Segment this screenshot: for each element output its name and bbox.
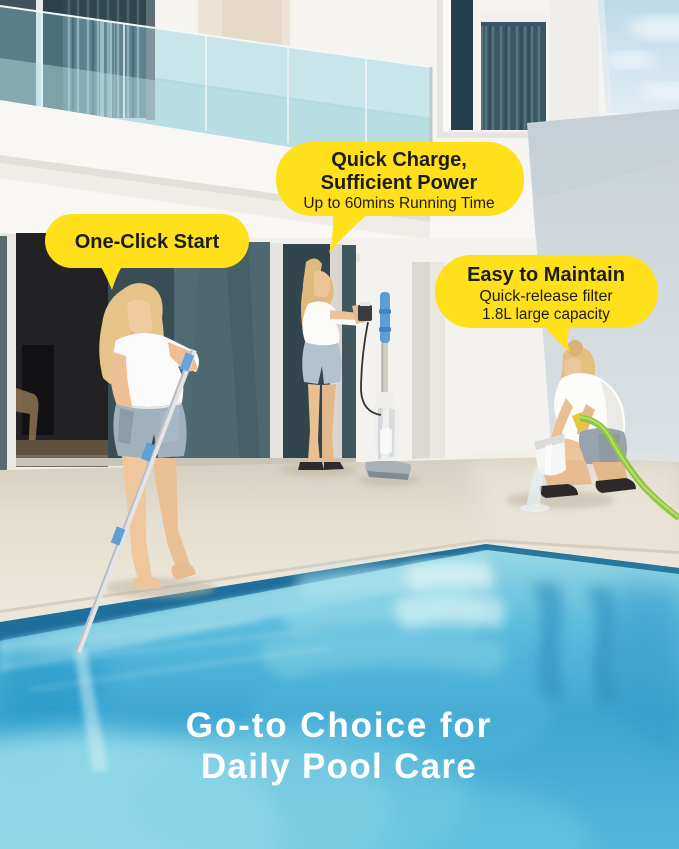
svg-text:Up to 60mins Running Time: Up to 60mins Running Time [303,195,494,212]
svg-text:One-Click Start: One-Click Start [75,231,220,253]
svg-text:Easy to Maintain: Easy to Maintain [467,264,625,286]
svg-text:Sufficient Power: Sufficient Power [321,172,478,194]
svg-text:Quick Charge,: Quick Charge, [331,149,467,171]
svg-text:Daily Pool Care: Daily Pool Care [201,747,477,786]
svg-text:Go-to Choice for: Go-to Choice for [186,706,493,745]
svg-text:1.8L large capacity: 1.8L large capacity [482,306,610,323]
svg-text:Quick-release filter: Quick-release filter [479,288,613,305]
